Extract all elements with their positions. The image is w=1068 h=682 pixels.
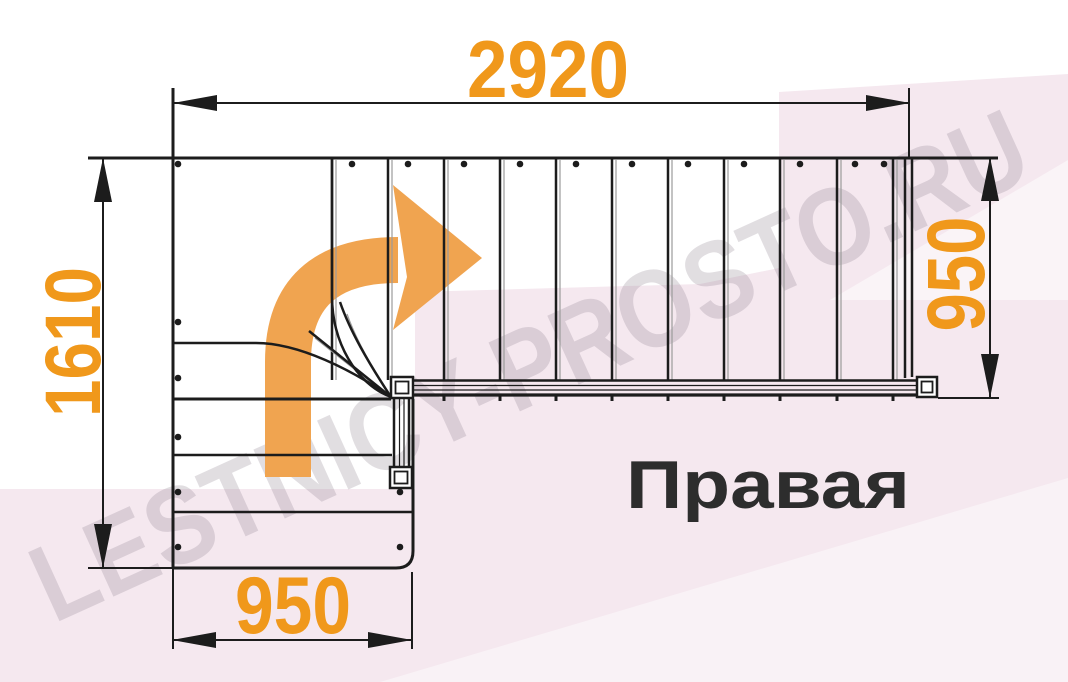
- stair-plan-drawing: LESTNICY-PROSTO.RU: [0, 0, 1068, 682]
- stair-type-label: Правая: [626, 447, 910, 523]
- dimension-top-value: 2920: [467, 25, 629, 115]
- dimension-left-value: 1610: [28, 267, 117, 417]
- dimension-bottom-value: 950: [235, 561, 351, 651]
- dimension-right-value: 950: [911, 217, 1002, 332]
- stair-plan-screenshot: LESTNICY-PROSTO.RU: [0, 0, 1068, 682]
